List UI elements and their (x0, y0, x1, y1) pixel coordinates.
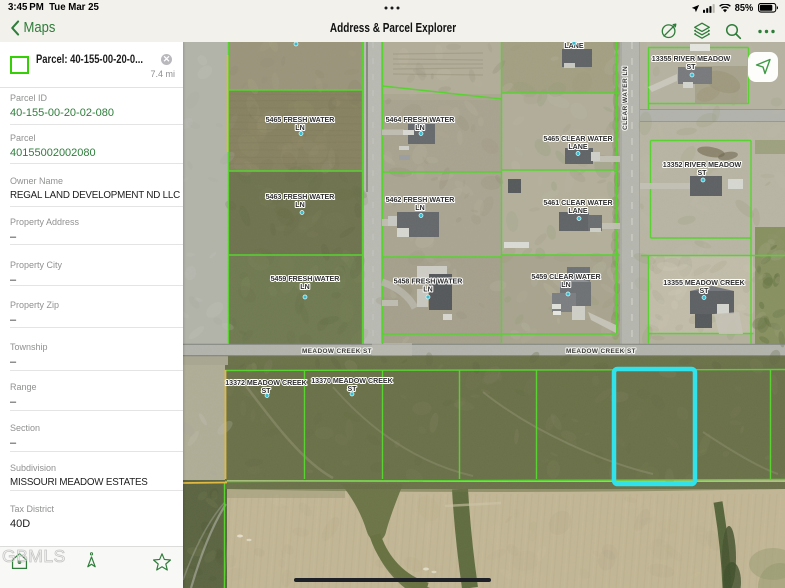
svg-text:13352 RIVER MEADOW: 13352 RIVER MEADOW (663, 161, 742, 169)
svg-text:5464 FRESH WATER: 5464 FRESH WATER (386, 116, 455, 124)
svg-text:13355 MEADOW CREEK: 13355 MEADOW CREEK (663, 279, 745, 287)
svg-text:LN: LN (415, 204, 424, 212)
svg-text:5465 FRESH WATER: 5465 FRESH WATER (266, 116, 335, 124)
svg-text:5459 CLEAR WATER: 5459 CLEAR WATER (531, 273, 600, 281)
svg-text:LN: LN (561, 281, 570, 289)
svg-text:LN: LN (300, 283, 309, 291)
svg-text:5459 FRESH WATER: 5459 FRESH WATER (271, 275, 340, 283)
svg-text:LN: LN (423, 286, 432, 294)
svg-text:MEADOW CREEK ST: MEADOW CREEK ST (302, 348, 372, 355)
svg-text:5465 CLEAR WATER: 5465 CLEAR WATER (543, 135, 612, 143)
svg-text:LN: LN (295, 201, 304, 209)
svg-text:LN: LN (415, 124, 424, 132)
svg-text:CLEAR WATER LN: CLEAR WATER LN (622, 66, 629, 130)
svg-text:ST: ST (699, 287, 709, 295)
svg-text:13370 MEADOW CREEK: 13370 MEADOW CREEK (311, 377, 393, 385)
svg-text:LANE: LANE (568, 143, 588, 151)
svg-text:ST: ST (697, 169, 707, 177)
svg-text:MEADOW CREEK ST: MEADOW CREEK ST (566, 348, 636, 355)
svg-text:LN: LN (295, 124, 304, 132)
svg-text:5462 FRESH WATER: 5462 FRESH WATER (386, 196, 455, 204)
svg-text:13372 MEADOW CREEK: 13372 MEADOW CREEK (225, 379, 307, 387)
svg-text:5461 CLEAR WATER: 5461 CLEAR WATER (543, 199, 612, 207)
svg-text:13355 RIVER MEADOW: 13355 RIVER MEADOW (652, 55, 731, 63)
svg-text:5458 FRESH WATER: 5458 FRESH WATER (394, 278, 463, 286)
svg-text:LANE: LANE (568, 207, 588, 215)
svg-text:ST: ST (686, 63, 696, 71)
svg-text:5463 FRESH WATER: 5463 FRESH WATER (266, 193, 335, 201)
